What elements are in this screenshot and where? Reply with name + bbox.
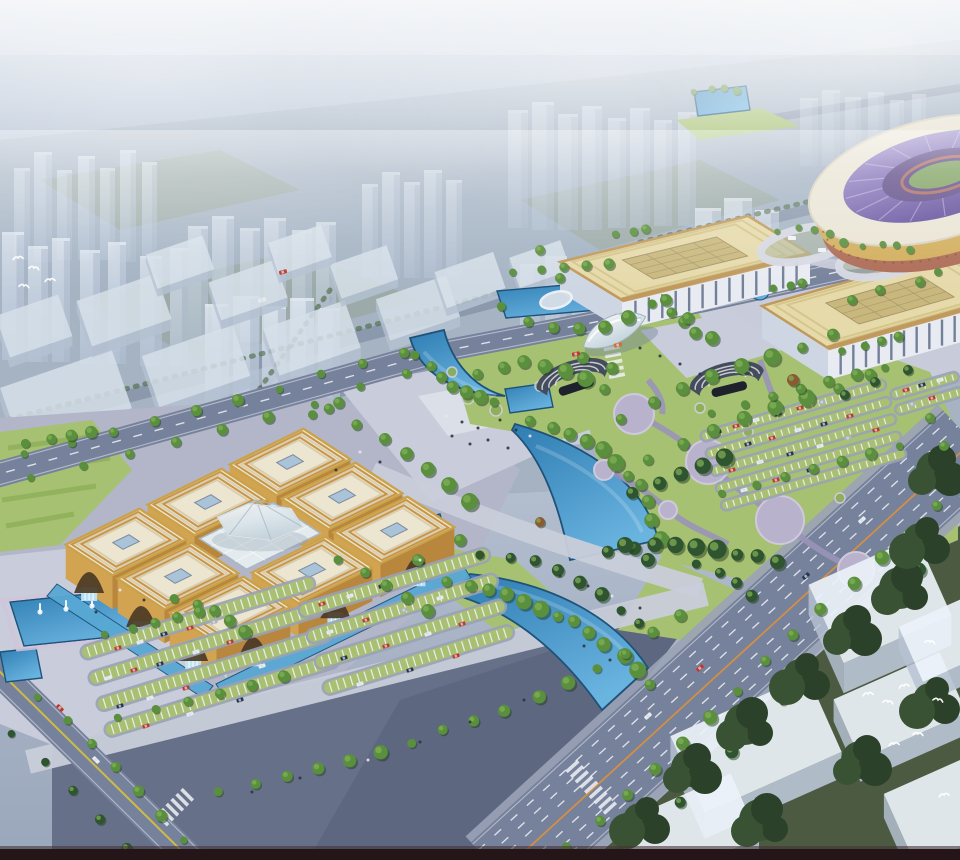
fog-overlay [0,0,960,290]
bottom-strip [0,849,960,860]
aerial-rendering [0,0,960,860]
scene-svg [0,0,960,860]
